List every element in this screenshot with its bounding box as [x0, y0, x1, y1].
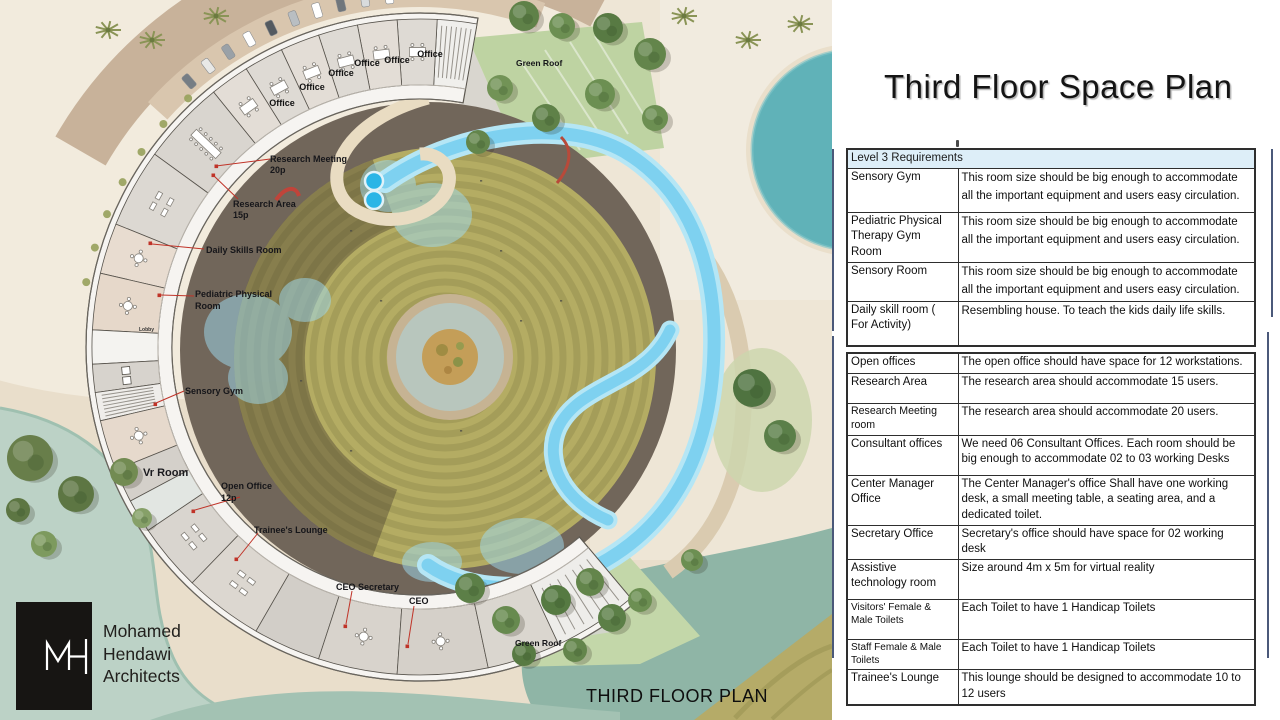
- plan-label-trainees-lounge: Trainee's Lounge: [254, 525, 328, 535]
- screenshot-border-line: [832, 149, 834, 331]
- requirement-cell: The open office should have space for 12…: [958, 353, 1255, 374]
- requirement-cell: The Center Manager's office Shall have o…: [958, 476, 1255, 526]
- central-pond: [387, 294, 513, 420]
- screenshot-border-line: [1271, 149, 1273, 317]
- requirement-cell: Each Toilet to have 1 Handicap Toilets: [958, 600, 1255, 640]
- plan-caption: THIRD FLOOR PLAN: [586, 686, 768, 706]
- table-header: Level 3 Requirements: [847, 149, 1255, 169]
- plan-label-research-meeting: Research Meeting: [270, 154, 347, 164]
- mh-monogram-icon: [16, 602, 92, 710]
- requirement-cell: This room size should be big enough to a…: [958, 169, 1255, 213]
- room-name-cell: Assistive technology room: [847, 560, 958, 600]
- plan-label-open-office-cap: 12p: [221, 493, 237, 503]
- screenshot-border-line: [832, 336, 834, 658]
- plan-label-vr-room: Vr Room: [143, 467, 188, 479]
- plan-label-pediatric-2: Room: [195, 301, 221, 311]
- room-name-cell: Consultant offices: [847, 436, 958, 476]
- plan-label-office-5: Office: [384, 55, 410, 65]
- requirement-cell: This room size should be big enough to a…: [958, 213, 1255, 263]
- plan-label-research-area: Research Area: [233, 199, 297, 209]
- table-header-row: Level 3 Requirements: [847, 149, 1255, 169]
- floor-plan-rendering: Office Office Office Office Office Offic…: [0, 0, 832, 720]
- plan-label-ceo-secretary: CEO Secretary: [336, 582, 399, 592]
- room-name-cell: Visitors' Female & Male Toilets: [847, 600, 958, 640]
- plan-label-green-roof-top: Green Roof: [516, 58, 562, 68]
- plan-label-office-6: Office: [417, 49, 443, 59]
- room-name-cell: Research Meeting room: [847, 404, 958, 436]
- table-row: Sensory RoomThis room size should be big…: [847, 262, 1255, 302]
- requirements-tables: Level 3 Requirements Sensory GymThis roo…: [846, 148, 1256, 706]
- room-name-cell: Daily skill room ( For Activity): [847, 302, 958, 346]
- requirement-cell: The research area should accommodate 20 …: [958, 404, 1255, 436]
- plan-label-office-1: Office: [269, 98, 295, 108]
- requirement-cell: Size around 4m x 5m for virtual reality: [958, 560, 1255, 600]
- plan-label-lobby: Lobby: [139, 327, 154, 333]
- plan-label-open-office: Open Office: [221, 481, 272, 491]
- table-row: Research Meeting roomThe research area s…: [847, 404, 1255, 436]
- table-row: Research AreaThe research area should ac…: [847, 374, 1255, 404]
- room-name-cell: Center Manager Office: [847, 476, 958, 526]
- firm-name-line: Hendawi: [103, 643, 181, 666]
- requirement-cell: This lounge should be designed to accomm…: [958, 670, 1255, 705]
- room-name-cell: Staff Female & Male Toilets: [847, 640, 958, 670]
- table-row: Center Manager OfficeThe Center Manager'…: [847, 476, 1255, 526]
- room-name-cell: Pediatric Physical Therapy Gym Room: [847, 213, 958, 263]
- table-row: Trainee's LoungeThis lounge should be de…: [847, 670, 1255, 705]
- plan-label-pediatric-1: Pediatric Physical: [195, 289, 272, 299]
- page-title: Third Floor Space Plan: [884, 68, 1264, 106]
- room-name-cell: Open offices: [847, 353, 958, 374]
- plan-label-research-meeting-cap: 20p: [270, 165, 286, 175]
- table-row: Sensory GymThis room size should be big …: [847, 169, 1255, 213]
- firm-name: Mohamed Hendawi Architects: [103, 620, 181, 688]
- table-row: Visitors' Female & Male ToiletsEach Toil…: [847, 600, 1255, 640]
- table-row: Consultant officesWe need 06 Consultant …: [847, 436, 1255, 476]
- table-row: Staff Female & Male ToiletsEach Toilet t…: [847, 640, 1255, 670]
- requirement-cell: We need 06 Consultant Offices. Each room…: [958, 436, 1255, 476]
- room-name-cell: Research Area: [847, 374, 958, 404]
- plan-label-research-area-cap: 15p: [233, 210, 249, 220]
- firm-name-line: Architects: [103, 665, 181, 688]
- logo-block: [16, 602, 92, 710]
- requirements-table-1: Level 3 Requirements Sensory GymThis roo…: [846, 148, 1256, 347]
- plan-label-office-3: Office: [328, 68, 354, 78]
- plan-label-office-4: Office: [354, 58, 380, 68]
- requirement-cell: Secretary's office should have space for…: [958, 525, 1255, 559]
- table-row: Assistive technology roomSize around 4m …: [847, 560, 1255, 600]
- plan-label-office-2: Office: [299, 82, 325, 92]
- requirement-cell: This room size should be big enough to a…: [958, 262, 1255, 302]
- plan-label-green-roof-bottom: Green Roof: [515, 638, 561, 648]
- table-row: Daily skill room ( For Activity)Resembli…: [847, 302, 1255, 346]
- plan-label-ceo: CEO: [409, 596, 429, 606]
- firm-name-line: Mohamed: [103, 620, 181, 643]
- requirements-table-2: Open officesThe open office should have …: [846, 352, 1256, 706]
- room-name-cell: Sensory Gym: [847, 169, 958, 213]
- table-row: Open officesThe open office should have …: [847, 353, 1255, 374]
- table-row: Pediatric Physical Therapy Gym RoomThis …: [847, 213, 1255, 263]
- room-name-cell: Trainee's Lounge: [847, 670, 958, 705]
- stray-mark: [956, 140, 959, 147]
- room-name-cell: Secretary Office: [847, 525, 958, 559]
- room-name-cell: Sensory Room: [847, 262, 958, 302]
- requirement-cell: Each Toilet to have 1 Handicap Toilets: [958, 640, 1255, 670]
- table-row: Secretary OfficeSecretary's office shoul…: [847, 525, 1255, 559]
- requirement-cell: Resembling house. To teach the kids dail…: [958, 302, 1255, 346]
- requirement-cell: The research area should accommodate 15 …: [958, 374, 1255, 404]
- slide: Office Office Office Office Office Offic…: [0, 0, 1280, 720]
- plan-label-daily-skills: Daily Skills Room: [206, 245, 282, 255]
- plan-label-sensory-gym: Sensory Gym: [185, 386, 243, 396]
- screenshot-border-line: [1267, 332, 1269, 658]
